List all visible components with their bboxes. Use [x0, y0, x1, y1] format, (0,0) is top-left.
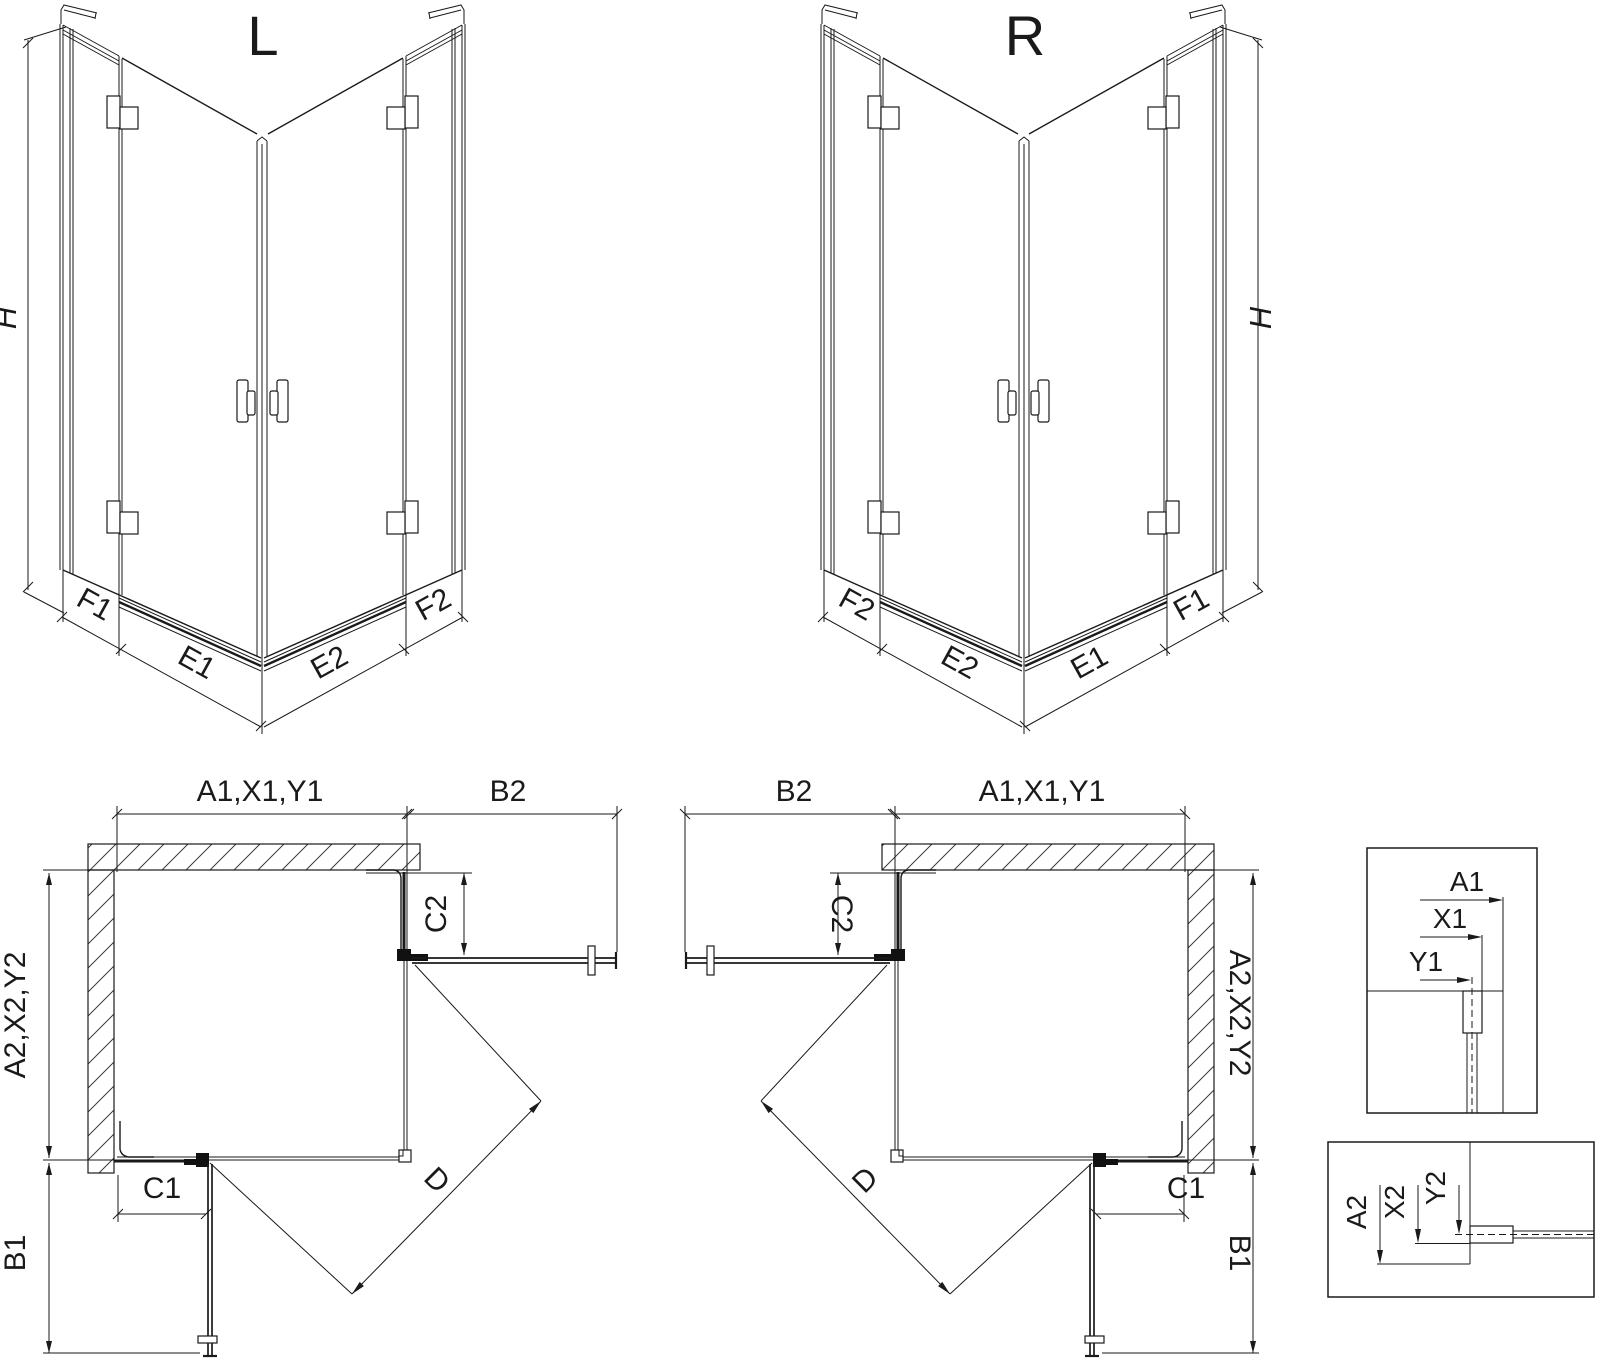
iso-right-lineart [818, 5, 1263, 734]
plan-view-right: B2 A1,X1,Y1 C2 A2,X2,Y2 B1 C1 D [680, 775, 1259, 1356]
iso-left-height-label: H [0, 306, 23, 329]
plan-right-lineart [680, 806, 1259, 1356]
iso-left-label-f1: F1 [71, 582, 118, 628]
iso-right-title: R [1005, 4, 1045, 67]
detail-top-label-x1: X1 [1433, 903, 1467, 934]
plan-right-label-c2: C2 [825, 895, 858, 933]
plan-left-label-a1x1y1: A1,X1,Y1 [197, 775, 324, 808]
iso-left-lineart [23, 5, 468, 734]
iso-right-height-label: H [1243, 306, 1278, 329]
plan-right-label-b1: B1 [1223, 1235, 1256, 1272]
iso-left-label-f2: F2 [410, 582, 457, 628]
plan-left-label-b1: B1 [0, 1235, 32, 1272]
plan-left-label-c1: C1 [143, 1172, 181, 1205]
detail-bottom-label-x2: X2 [1379, 1185, 1410, 1219]
iso-right-label-e1: E1 [1065, 639, 1113, 686]
detail-bottom-label-y2: Y2 [1420, 1171, 1451, 1205]
iso-left-label-e1: E1 [173, 639, 221, 686]
plan-left-label-b2: B2 [490, 775, 527, 808]
detail-view-bottom: A2 X2 Y2 [1328, 1142, 1594, 1297]
plan-left-label-c2: C2 [420, 895, 453, 933]
detail-bottom-label-a2: A2 [1341, 1195, 1372, 1229]
detail-top-label-y1: Y1 [1409, 946, 1443, 977]
plan-left-walls [88, 844, 420, 1173]
detail-view-top: A1 X1 Y1 [1367, 848, 1537, 1113]
plan-right-label-b2: B2 [776, 775, 813, 808]
plan-right-label-a1x1y1: A1,X1,Y1 [979, 775, 1106, 808]
iso-right-label-f2: F2 [833, 582, 880, 628]
iso-view-right: R H F2 E2 E1 F1 [818, 4, 1278, 734]
technical-drawing: L H F1 E1 E2 F2 R H F2 E2 E1 F1 A1,X1,Y1… [0, 0, 1600, 1371]
plan-view-left: A1,X1,Y1 B2 C2 A2,X2,Y2 B1 C1 D [0, 775, 622, 1356]
plan-left-lineart [43, 806, 622, 1356]
iso-view-left: L H F1 E1 E2 F2 [0, 4, 468, 734]
iso-left-label-e2: E2 [305, 639, 353, 686]
plan-right-label-a2x2y2: A2,X2,Y2 [1223, 950, 1256, 1077]
plan-left-label-a2x2y2: A2,X2,Y2 [0, 952, 32, 1079]
iso-left-title: L [247, 4, 278, 67]
iso-right-label-f1: F1 [1168, 582, 1215, 628]
detail-top-label-a1: A1 [1450, 866, 1484, 897]
plan-right-label-c1: C1 [1167, 1172, 1205, 1205]
plan-right-walls [882, 844, 1214, 1173]
